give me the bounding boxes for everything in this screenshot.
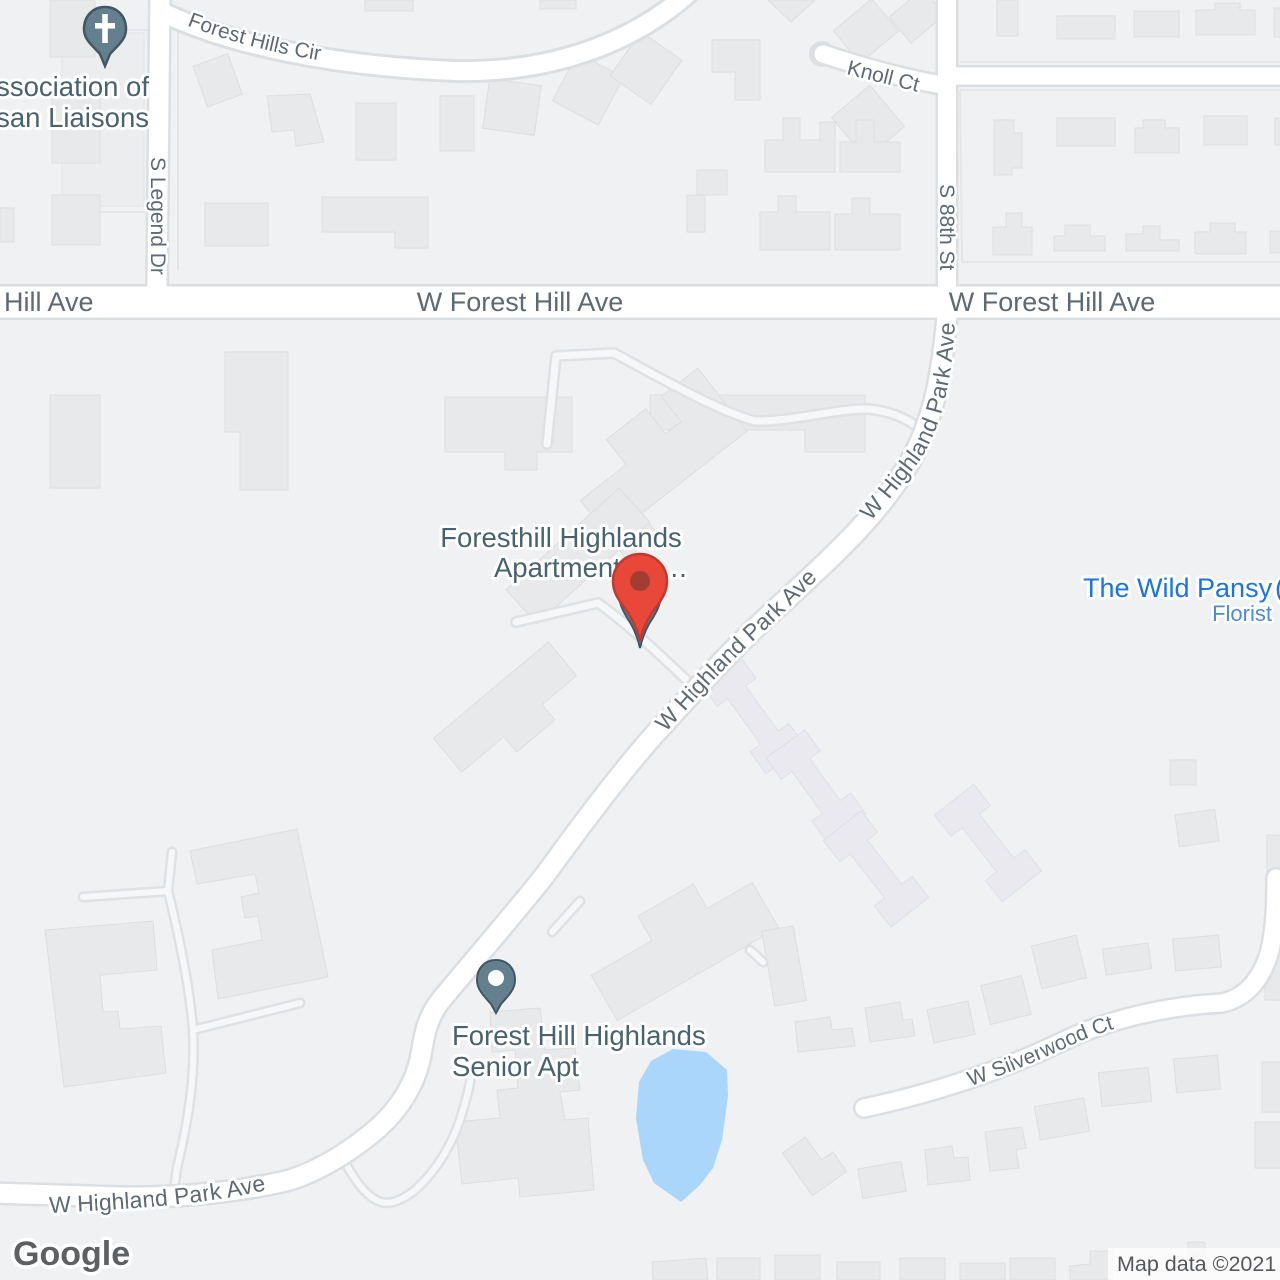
svg-text:Google: Google	[13, 1235, 130, 1273]
svg-text:Forest Hill Highlands: Forest Hill Highlands	[452, 1020, 706, 1051]
svg-text:The Wild Pansy: The Wild Pansy	[1083, 573, 1273, 603]
svg-text:Senior Apt: Senior Apt	[452, 1051, 579, 1082]
svg-text:S Legend Dr: S Legend Dr	[146, 157, 169, 275]
svg-text:Map data ©2021: Map data ©2021	[1117, 1252, 1276, 1276]
svg-text:S 88th St: S 88th St	[935, 184, 958, 271]
svg-text:Florist: Florist	[1212, 601, 1272, 626]
svg-text:W Forest Hill Ave: W Forest Hill Ave	[417, 287, 624, 317]
svg-text:Foresthill Highlands: Foresthill Highlands	[440, 522, 682, 553]
svg-text:esan Liaisons: esan Liaisons	[0, 102, 149, 133]
svg-text:Association of: Association of	[0, 71, 149, 102]
svg-text:W Forest Hill Ave: W Forest Hill Ave	[949, 287, 1156, 317]
svg-text:(: (	[1275, 573, 1280, 603]
svg-text:Hill Ave: Hill Ave	[4, 287, 94, 317]
